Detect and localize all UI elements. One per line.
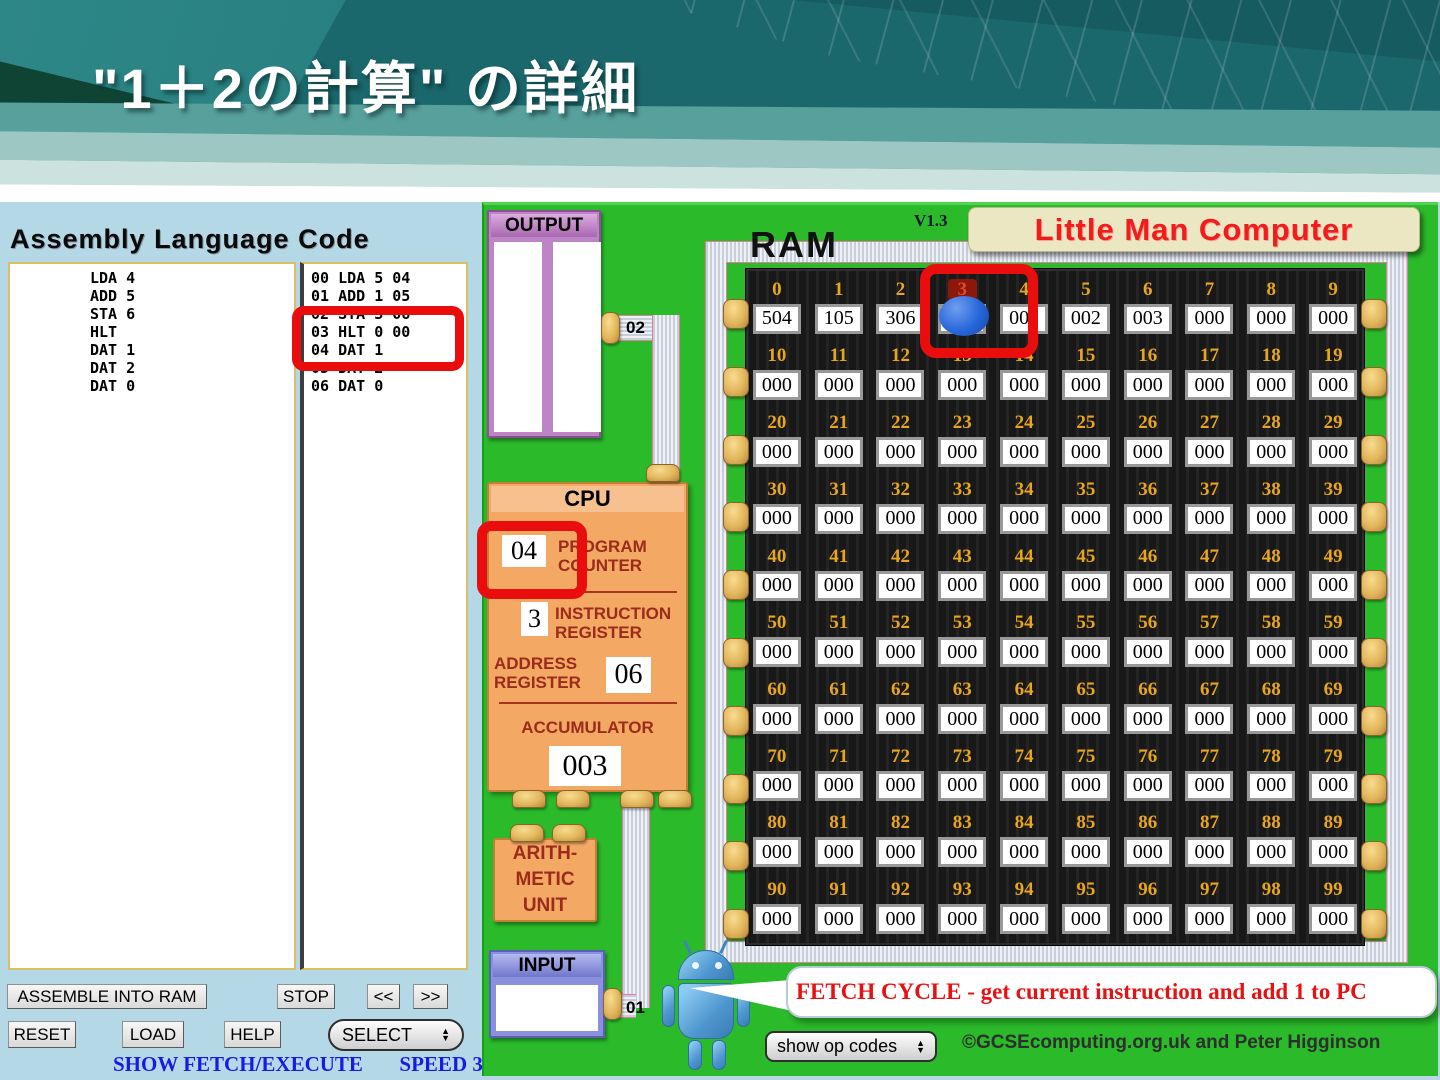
ram-value-cell[interactable]: 000 — [1309, 370, 1357, 400]
ram-address: 11 — [830, 345, 848, 367]
ram-address: 72 — [891, 746, 910, 768]
ram-value-cell[interactable]: 000 — [753, 771, 801, 801]
ram-address: 49 — [1324, 546, 1343, 568]
ram-address-row: 10111213141516171819 — [746, 344, 1364, 368]
ram-address: 37 — [1200, 479, 1219, 501]
assembled-code-line: 01 ADD 1 05 — [311, 287, 466, 305]
ram-value-cell[interactable]: 000 — [1062, 370, 1110, 400]
ram-value-cell[interactable]: 000 — [876, 904, 924, 934]
ram-value-cell[interactable]: 000 — [876, 837, 924, 867]
ram-value-row: 000000000000000000000000000000 — [746, 502, 1364, 536]
ram-row: 1011121314151617181900000000000000000000… — [746, 344, 1364, 402]
ram-value-cell[interactable]: 000 — [753, 704, 801, 734]
ram-row: 5051525354555657585900000000000000000000… — [746, 611, 1364, 669]
ram-address: 65 — [1076, 679, 1095, 701]
robot-arm — [662, 985, 675, 1027]
ram-address: 5 — [1081, 279, 1091, 301]
ram-value-cell[interactable]: 000 — [1000, 704, 1048, 734]
ram-value-cell[interactable]: 000 — [938, 904, 986, 934]
ram-value-cell[interactable]: 000 — [1000, 571, 1048, 601]
ram-value-cell[interactable]: 000 — [1124, 904, 1172, 934]
ram-value-cell[interactable]: 000 — [1124, 437, 1172, 467]
ram-address: 35 — [1076, 479, 1095, 501]
ram-value-row: 000000000000000000000000000000 — [746, 368, 1364, 402]
ram-address: 7 — [1205, 279, 1215, 301]
connector-tab-alu — [552, 824, 586, 842]
ram-value-cell[interactable]: 000 — [1309, 437, 1357, 467]
stop-button[interactable]: STOP — [277, 984, 335, 1009]
ram-value-cell[interactable]: 000 — [1185, 904, 1233, 934]
ram-address: 17 — [1200, 345, 1219, 367]
ram-address: 26 — [1138, 412, 1157, 434]
ram-value-cell[interactable]: 000 — [1309, 304, 1357, 334]
ram-address: 50 — [767, 612, 786, 634]
source-code-line: DAT 1 — [90, 341, 294, 359]
ram-address: 22 — [891, 412, 910, 434]
ram-address: 30 — [767, 479, 786, 501]
ram-address: 19 — [1324, 345, 1343, 367]
ram-value-cell[interactable]: 000 — [1062, 904, 1110, 934]
ram-value-cell[interactable]: 000 — [1062, 837, 1110, 867]
step-forward-button[interactable]: >> — [413, 984, 448, 1009]
ram-value-cell[interactable]: 000 — [815, 904, 863, 934]
ram-label: RAM — [750, 224, 838, 266]
input-field[interactable] — [496, 985, 598, 1031]
ram-value-cell[interactable]: 001 — [1000, 304, 1048, 334]
cpu-title: CPU — [491, 486, 684, 512]
ram-address: 32 — [891, 479, 910, 501]
load-button[interactable]: LOAD — [122, 1021, 184, 1048]
ram-address: 20 — [767, 412, 786, 434]
ram-value-cell[interactable]: 000 — [876, 370, 924, 400]
output-column — [494, 242, 542, 432]
connector-tab-ram-right — [1361, 502, 1387, 532]
program-counter-label: PROGRAM COUNTER — [558, 537, 647, 575]
connector-tab-ram-right — [1361, 638, 1387, 668]
little-man-computer-logo: Little Man Computer — [968, 207, 1420, 252]
ram-address: 21 — [829, 412, 848, 434]
ram-value-cell[interactable]: 000 — [938, 771, 986, 801]
arrow-down-icon: ▼ — [441, 1035, 450, 1042]
ram-value-cell[interactable]: 000 — [876, 504, 924, 534]
ram-value-cell[interactable]: 000 — [815, 504, 863, 534]
ram-value-cell[interactable]: 000 — [1309, 637, 1357, 667]
connector-tab-input — [603, 988, 622, 1020]
ram-address: 84 — [1015, 812, 1034, 834]
ram-value-cell[interactable]: 000 — [1185, 504, 1233, 534]
ram-row: 3031323334353637383900000000000000000000… — [746, 478, 1364, 536]
ram-address: 90 — [767, 879, 786, 901]
select-dropdown[interactable]: SELECT ▲ ▼ — [328, 1019, 464, 1051]
ram-value-cell[interactable]: 000 — [753, 637, 801, 667]
connector-tab-ram-left — [723, 435, 749, 465]
ram-row: 9091929394959697989900000000000000000000… — [746, 878, 1364, 936]
connector-tab-ram-left — [723, 502, 749, 532]
assembled-code-box[interactable]: 00 LDA 5 0401 ADD 1 0502 STA 3 0603 HLT … — [300, 262, 468, 970]
ram-address-row: 20212223242526272829 — [746, 411, 1364, 435]
ram-value-cell[interactable]: 000 — [1247, 504, 1295, 534]
ram-value-cell[interactable]: 306 — [876, 304, 924, 334]
ram-value-cell[interactable]: 000 — [1124, 771, 1172, 801]
robot-leg — [712, 1040, 726, 1070]
ram-value-cell[interactable]: 000 — [1000, 437, 1048, 467]
version-label: V1.3 — [914, 211, 948, 231]
ram-value-cell[interactable]: 000 — [1062, 637, 1110, 667]
ram-value-cell[interactable]: 000 — [938, 637, 986, 667]
assembly-panel-title: Assembly Language Code — [10, 224, 370, 255]
cpu-divider — [499, 591, 677, 593]
ram-address: 0 — [772, 279, 782, 301]
ram-address: 69 — [1324, 679, 1343, 701]
ram-value-cell[interactable]: 000 — [1247, 437, 1295, 467]
connector-tab-cpu-top — [646, 464, 680, 482]
ram-address: 33 — [953, 479, 972, 501]
ram-value-cell[interactable]: 000 — [1247, 837, 1295, 867]
ram-address: 23 — [953, 412, 972, 434]
ram-value-cell[interactable]: 000 — [1124, 837, 1172, 867]
ram-address: 8 — [1267, 279, 1277, 301]
android-robot-mascot — [656, 940, 760, 1074]
ram-address: 1 — [834, 279, 844, 301]
ram-row: 7071727374757677787900000000000000000000… — [746, 745, 1364, 803]
connector-tab-ram-left — [723, 909, 749, 939]
ram-value-cell[interactable]: 000 — [1185, 637, 1233, 667]
program-counter-value: 04 — [502, 535, 546, 567]
ram-value-cell[interactable]: 000 — [1247, 904, 1295, 934]
connector-tab-cpu-bottom — [512, 790, 546, 808]
ram-value-cell[interactable]: 000 — [753, 370, 801, 400]
robot-antenna — [683, 940, 692, 954]
ram-address: 39 — [1324, 479, 1343, 501]
ram-value-cell[interactable]: 000 — [815, 571, 863, 601]
ram-value-cell[interactable]: 000 — [753, 571, 801, 601]
ram-address: 51 — [829, 612, 848, 634]
ram-address-row: 30313233343536373839 — [746, 478, 1364, 502]
ram-value-row: 000000000000000000000000000000 — [746, 902, 1364, 936]
ram-address: 92 — [891, 879, 910, 901]
cpu-divider — [499, 702, 677, 704]
ram-address: 15 — [1076, 345, 1095, 367]
ram-address: 83 — [953, 812, 972, 834]
ram-value-cell[interactable]: 000 — [938, 504, 986, 534]
ram-address: 80 — [767, 812, 786, 834]
ram-value-cell[interactable]: 000 — [1062, 504, 1110, 534]
ram-value-cell[interactable]: 000 — [1309, 571, 1357, 601]
ram-address: 9 — [1328, 279, 1338, 301]
connector-tab-ram-right — [1361, 909, 1387, 939]
ram-value-cell[interactable]: 002 — [1062, 304, 1110, 334]
ram-address: 66 — [1138, 679, 1157, 701]
connector-tab-ram-right — [1361, 774, 1387, 804]
ram-value-cell[interactable]: 000 — [938, 704, 986, 734]
connector-tab-ram-left — [723, 570, 749, 600]
ram-value-cell[interactable]: 000 — [1000, 637, 1048, 667]
ram-value-cell[interactable]: 000 — [876, 771, 924, 801]
ram-value-cell[interactable]: 000 — [1062, 771, 1110, 801]
source-code-box[interactable]: LDA 4ADD 5STA 6HLTDAT 1DAT 2DAT 0 — [8, 262, 296, 970]
status-message-bubble: FETCH CYCLE - get current instruction an… — [786, 966, 1437, 1018]
ram-address: 99 — [1324, 879, 1343, 901]
arithmetic-unit-box: ARITH- METIC UNIT — [493, 838, 597, 922]
robot-leg — [688, 1040, 702, 1070]
source-code-line: LDA 4 — [90, 269, 294, 287]
ram-value-cell[interactable]: 000 — [1185, 837, 1233, 867]
ram-address: 61 — [829, 679, 848, 701]
show-op-codes-dropdown[interactable]: show op codes ▲ ▼ — [765, 1031, 937, 1062]
help-button[interactable]: HELP — [224, 1021, 281, 1048]
accumulator-value: 003 — [549, 746, 621, 786]
ram-address: 82 — [891, 812, 910, 834]
ram-value-cell[interactable]: 000 — [1062, 437, 1110, 467]
step-back-button[interactable]: << — [367, 984, 400, 1009]
ram-address: 42 — [891, 546, 910, 568]
ram-address: 81 — [829, 812, 848, 834]
ram-value-cell[interactable]: 000 — [876, 637, 924, 667]
ram-address-row: 90919293949596979899 — [746, 878, 1364, 902]
connector-tab-ram-left — [723, 299, 749, 329]
ram-address: 31 — [829, 479, 848, 501]
ram-grid: 0123456789504105306000001002003000000000… — [745, 268, 1365, 946]
screenshot-root: "1＋2の計算" の詳細 Assembly Language Code LDA … — [0, 0, 1440, 1080]
ram-value-cell[interactable]: 000 — [1124, 704, 1172, 734]
ram-address: 58 — [1262, 612, 1281, 634]
ram-value-cell[interactable]: 000 — [815, 370, 863, 400]
connector-tab-ram-right — [1361, 367, 1387, 397]
ram-address: 93 — [953, 879, 972, 901]
ram-value-cell[interactable]: 000 — [1309, 704, 1357, 734]
connector-tab-ram-left — [723, 367, 749, 397]
source-code-line: DAT 2 — [90, 359, 294, 377]
ram-value-cell[interactable]: 000 — [1124, 571, 1172, 601]
ram-value-cell[interactable]: 000 — [938, 571, 986, 601]
source-code-line: HLT — [90, 323, 294, 341]
ram-address: 54 — [1015, 612, 1034, 634]
ram-value-cell[interactable]: 000 — [815, 637, 863, 667]
source-code-line: DAT 0 — [90, 377, 294, 395]
robot-eye — [715, 962, 722, 969]
ram-address: 57 — [1200, 612, 1219, 634]
ram-value-cell[interactable]: 000 — [876, 704, 924, 734]
ram-address: 6 — [1143, 279, 1153, 301]
cpu-input-bus — [622, 792, 650, 1008]
ram-address: 85 — [1076, 812, 1095, 834]
ram-address: 25 — [1076, 412, 1095, 434]
ram-address: 68 — [1262, 679, 1281, 701]
ram-value-cell[interactable]: 000 — [1185, 704, 1233, 734]
robot-head — [678, 950, 734, 980]
speed-label: SPEED 3 — [399, 1052, 482, 1076]
ram-value-cell[interactable]: 000 — [1309, 904, 1357, 934]
ram-address: 96 — [1138, 879, 1157, 901]
assembled-code-line: 03 HLT 0 00 — [311, 323, 466, 341]
ram-value-cell[interactable]: 000 — [1309, 504, 1357, 534]
ram-address: 89 — [1324, 812, 1343, 834]
ram-address: 73 — [953, 746, 972, 768]
input-port-label: 01 — [626, 998, 645, 1018]
ram-address: 28 — [1262, 412, 1281, 434]
ram-value-cell[interactable]: 000 — [753, 437, 801, 467]
ram-value-cell[interactable]: 003 — [1124, 304, 1172, 334]
assemble-into-ram-button[interactable]: ASSEMBLE INTO RAM — [7, 984, 207, 1009]
ram-address: 4 — [1019, 279, 1029, 301]
output-cpu-bus — [652, 315, 680, 471]
ram-address-row: 70717273747576777879 — [746, 745, 1364, 769]
ram-value-cell[interactable]: 000 — [1247, 571, 1295, 601]
fetch-execute-status: SHOW FETCH/EXECUTE SPEED 3 — [113, 1052, 483, 1077]
ram-value-cell[interactable]: 000 — [1185, 304, 1233, 334]
ram-address: 18 — [1262, 345, 1281, 367]
ram-value-cell[interactable]: 000 — [1000, 771, 1048, 801]
ram-value-cell[interactable]: 000 — [1185, 370, 1233, 400]
assembled-code-line: 02 STA 3 06 — [311, 305, 466, 323]
ram-address: 10 — [767, 345, 786, 367]
ram-address: 52 — [891, 612, 910, 634]
ram-value-cell[interactable]: 000 — [815, 704, 863, 734]
connector-tab-ram-left — [723, 706, 749, 736]
ram-value-cell[interactable]: 000 — [876, 437, 924, 467]
ram-address: 36 — [1138, 479, 1157, 501]
ram-address: 88 — [1262, 812, 1281, 834]
ram-address: 60 — [767, 679, 786, 701]
ram-address: 67 — [1200, 679, 1219, 701]
connector-tab-cpu-bottom — [620, 790, 654, 808]
ram-value-cell[interactable]: 105 — [815, 304, 863, 334]
ram-value-cell[interactable]: 000 — [938, 437, 986, 467]
output-column — [553, 242, 601, 432]
ram-address: 38 — [1262, 479, 1281, 501]
ram-value-cell[interactable]: 000 — [1247, 304, 1295, 334]
connector-tab-ram-right — [1361, 706, 1387, 736]
assembled-code-line: 06 DAT 0 — [311, 377, 466, 395]
robot-antenna — [719, 940, 728, 954]
ram-value-cell[interactable]: 000 — [938, 837, 986, 867]
ram-value-cell[interactable]: 000 — [815, 437, 863, 467]
source-code-line: ADD 5 — [90, 287, 294, 305]
ram-address: 74 — [1015, 746, 1034, 768]
ram-value-cell[interactable]: 000 — [1247, 771, 1295, 801]
output-port-label: 02 — [626, 318, 645, 338]
ram-value-row: 000000000000000000000000000000 — [746, 635, 1364, 669]
ram-value-cell[interactable]: 000 — [1000, 904, 1048, 934]
ram-value-cell[interactable]: 000 — [1000, 370, 1048, 400]
ram-value-cell[interactable]: 000 — [1309, 837, 1357, 867]
robot-eye — [692, 962, 699, 969]
address-register-value: 06 — [606, 657, 651, 693]
ram-value-cell[interactable]: 000 — [876, 571, 924, 601]
ram-value-cell[interactable]: 000 — [1247, 637, 1295, 667]
ram-value-cell[interactable]: 000 — [1124, 637, 1172, 667]
ram-value-cell[interactable]: 000 — [815, 771, 863, 801]
ram-address: 79 — [1324, 746, 1343, 768]
connector-tab-alu — [510, 824, 544, 842]
ram-value-cell[interactable]: 000 — [1185, 571, 1233, 601]
ram-address: 87 — [1200, 812, 1219, 834]
accumulator-label: ACCUMULATOR — [489, 718, 686, 737]
ram-value-cell[interactable]: 000 — [753, 837, 801, 867]
ram-value-cell[interactable]: 000 — [1185, 437, 1233, 467]
ram-address-row: 50515253545556575859 — [746, 611, 1364, 635]
ram-value-cell[interactable]: 000 — [1000, 837, 1048, 867]
connector-tab-ram-left — [723, 638, 749, 668]
ram-address: 63 — [953, 679, 972, 701]
ram-address: 40 — [767, 546, 786, 568]
ram-address: 97 — [1200, 879, 1219, 901]
ram-value-cell[interactable]: 000 — [1309, 771, 1357, 801]
ram-value-cell[interactable]: 000 — [815, 837, 863, 867]
connector-tab-cpu-bottom — [658, 790, 692, 808]
ram-row: 8081828384858687888900000000000000000000… — [746, 811, 1364, 869]
ram-value-cell[interactable]: 504 — [753, 304, 801, 334]
assembled-code-line: 05 DAT 2 — [311, 359, 466, 377]
ram-address-row: 80818283848586878889 — [746, 811, 1364, 835]
ram-address: 71 — [829, 746, 848, 768]
connector-tab-ram-left — [723, 841, 749, 871]
credits-text: ©GCSEcomputing.org.uk and Peter Higginso… — [962, 1032, 1380, 1054]
alu-label: METIC — [515, 867, 574, 893]
connector-tab-ram-left — [723, 774, 749, 804]
ram-address: 29 — [1324, 412, 1343, 434]
ram-value-cell[interactable]: 000 — [1247, 704, 1295, 734]
connector-tab-ram-right — [1361, 299, 1387, 329]
instruction-register-value: 3 — [521, 602, 548, 636]
ram-row: 4041424344454647484900000000000000000000… — [746, 545, 1364, 603]
alu-label: UNIT — [523, 893, 567, 919]
ram-row: 2021222324252627282900000000000000000000… — [746, 411, 1364, 469]
input-label: INPUT — [493, 954, 601, 977]
ram-value-cell[interactable]: 000 — [1247, 370, 1295, 400]
ram-address: 94 — [1015, 879, 1034, 901]
cpu-box: CPU 04 PROGRAM COUNTER 3 INSTRUCTION REG… — [487, 482, 688, 792]
ram-value-row: 000000000000000000000000000000 — [746, 569, 1364, 603]
ram-value-cell[interactable]: 000 — [1124, 370, 1172, 400]
assembled-code-line: 04 DAT 1 — [311, 341, 466, 359]
ram-address: 75 — [1076, 746, 1095, 768]
ram-value-cell[interactable]: 000 — [1124, 504, 1172, 534]
ram-value-cell[interactable]: 000 — [1185, 771, 1233, 801]
ram-address: 47 — [1200, 546, 1219, 568]
connector-tab-ram-right — [1361, 435, 1387, 465]
ram-address: 59 — [1324, 612, 1343, 634]
select-arrows-icon: ▲ ▼ — [441, 1028, 450, 1042]
fetch-data-ball — [939, 296, 989, 336]
ram-address: 46 — [1138, 546, 1157, 568]
ram-value-cell[interactable]: 000 — [1062, 571, 1110, 601]
ram-value-cell[interactable]: 000 — [753, 504, 801, 534]
reset-button[interactable]: RESET — [8, 1021, 76, 1048]
ram-address: 41 — [829, 546, 848, 568]
ram-value-cell[interactable]: 000 — [753, 904, 801, 934]
page-title: "1＋2の計算" の詳細 — [92, 44, 639, 125]
ram-address: 95 — [1076, 879, 1095, 901]
ram-address: 13 — [953, 345, 972, 367]
output-box: OUTPUT — [487, 210, 601, 438]
ram-address: 56 — [1138, 612, 1157, 634]
ram-address-row: 40414243444546474849 — [746, 545, 1364, 569]
output-label: OUTPUT — [491, 214, 597, 237]
source-code-line: STA 6 — [90, 305, 294, 323]
alu-label: ARITH- — [513, 841, 577, 867]
ram-address: 86 — [1138, 812, 1157, 834]
select-dropdown-label: SELECT — [342, 1025, 412, 1046]
ram-value-cell[interactable]: 000 — [1062, 704, 1110, 734]
ram-value-cell[interactable]: 000 — [938, 370, 986, 400]
ram-address: 2 — [896, 279, 906, 301]
ram-address: 53 — [953, 612, 972, 634]
ram-value-cell[interactable]: 000 — [1000, 504, 1048, 534]
ram-value-row: 504105306000001002003000000000 — [746, 302, 1364, 336]
ram-address: 45 — [1076, 546, 1095, 568]
ram-address: 24 — [1015, 412, 1034, 434]
